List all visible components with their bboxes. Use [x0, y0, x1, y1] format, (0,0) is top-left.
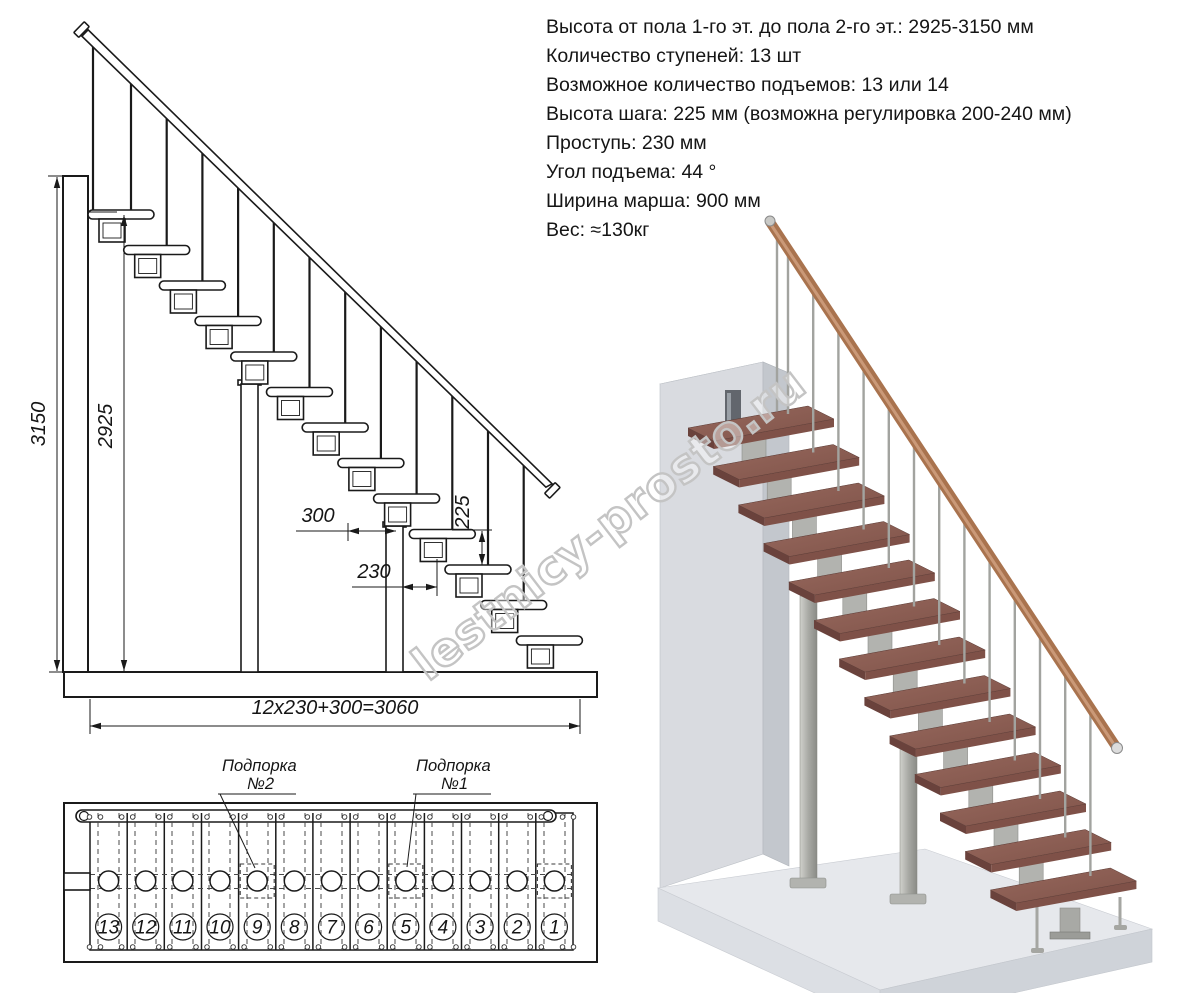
plan-step-number: 7	[326, 918, 338, 939]
plan-step-number: 6	[363, 918, 374, 939]
dim-landing-depth: 300	[301, 505, 334, 527]
spec-line-width: Ширина марша: 900 мм	[546, 187, 1072, 216]
render-support-column-2	[790, 596, 826, 888]
plan-step-number: 3	[475, 918, 486, 939]
render-handrail	[765, 216, 1123, 754]
spec-line-rise-count: Возможное количество подъемов: 13 или 14	[546, 71, 1072, 100]
elevation-view: 3150 2925 300 230 225 12x230+300=3060	[28, 22, 597, 734]
callout-support1-title: Подпорка	[416, 757, 491, 775]
render-handrail-end-cap	[1112, 743, 1123, 754]
plan-step-number: 5	[401, 918, 412, 939]
spec-line-step-count: Количество ступеней: 13 шт	[546, 42, 1072, 71]
plan-step-number: 8	[289, 918, 300, 939]
elevation-wall	[63, 176, 88, 672]
spec-line-weight: Вес: ≈130кг	[546, 216, 1072, 245]
spec-line-height-total: Высота от пола 1-го эт. до пола 2-го эт.…	[546, 13, 1072, 42]
callout-support2-title: Подпорка	[222, 757, 297, 775]
dim-clear-height: 2925	[95, 403, 117, 449]
elevation-floor	[64, 672, 597, 697]
plan-step-number: 10	[209, 918, 231, 939]
plan-step-number: 9	[252, 918, 263, 939]
dim-total-height: 3150	[28, 402, 50, 447]
callout-support2-num: №2	[247, 775, 274, 793]
plan-step-number: 11	[173, 918, 193, 939]
dim-step-rise: 225	[452, 494, 474, 529]
spec-text-block: Высота от пола 1-го эт. до пола 2-го эт.…	[546, 13, 1072, 245]
staircase-drawing-page: 3150 2925 300 230 225 12x230+300=3060	[0, 0, 1191, 993]
spec-line-step-height: Высота шага: 225 мм (возможна регулировк…	[546, 100, 1072, 129]
spec-line-angle: Угол подъема: 44 °	[546, 158, 1072, 187]
dim-total-run: 12x230+300=3060	[252, 697, 419, 719]
plan-step-number: 13	[98, 918, 120, 939]
plan-step-number: 12	[135, 918, 157, 939]
plan-step-number: 2	[511, 918, 523, 939]
callout-support1-num: №1	[441, 775, 468, 793]
elevation-dimensions: 3150 2925 300 230 225 12x230+300=3060	[28, 176, 580, 734]
spec-line-tread: Проступь: 230 мм	[546, 129, 1072, 158]
elevation-support-column-2	[238, 380, 261, 672]
plan-step-number: 1	[549, 918, 560, 939]
plan-view: 13 12 11 10 9 8 7 6 5 4 3 2 1 Подпорка №…	[64, 757, 597, 962]
plan-step-number: 4	[438, 918, 449, 939]
dim-tread-depth: 230	[356, 561, 390, 583]
elevation-support-column-1	[383, 522, 406, 672]
render-3d	[658, 216, 1152, 993]
